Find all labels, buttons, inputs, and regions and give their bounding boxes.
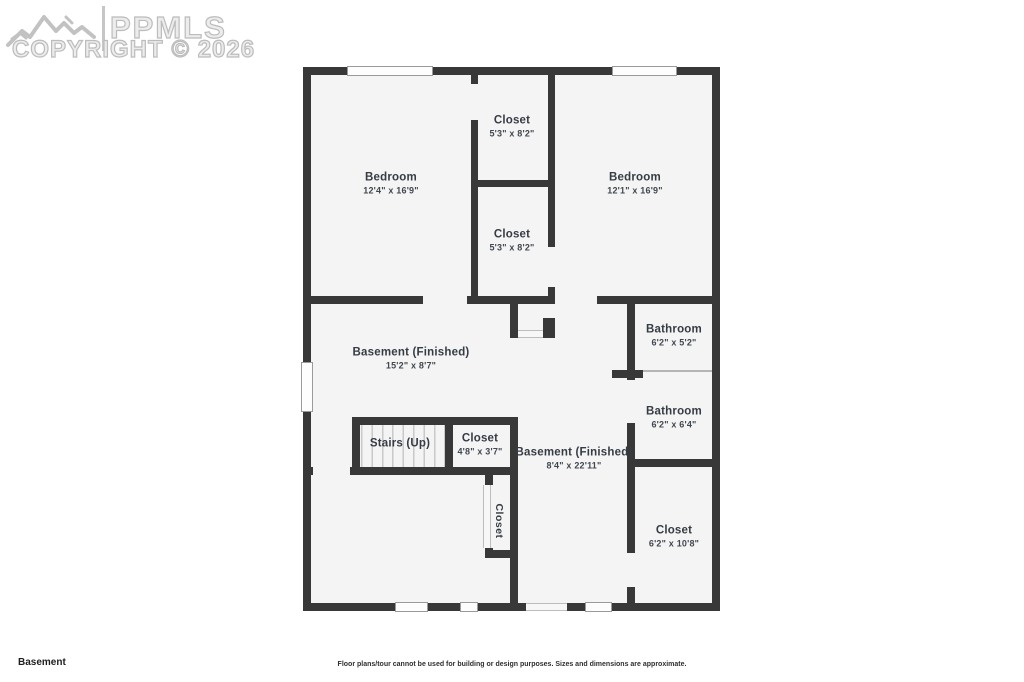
wall: [303, 296, 423, 304]
door-opening: [643, 370, 712, 372]
room-label-closet-top: Closet 5'3" x 8'2": [489, 115, 534, 140]
room-label-closet-small: Closet 4'8" x 3'7": [457, 433, 502, 458]
closet-door-opening: [483, 485, 491, 548]
room-label-closet-middle: Closet 5'3" x 8'2": [489, 229, 534, 254]
disclaimer-text: Floor plans/tour cannot be used for buil…: [338, 661, 687, 668]
wall: [567, 603, 586, 611]
room-dims: 6'2" x 10'8": [649, 539, 699, 549]
wall: [485, 550, 518, 558]
room-label-bedroom-upper-left: Bedroom 12'4" x 16'9": [363, 172, 418, 197]
door-opening: [518, 330, 543, 338]
wall: [548, 75, 555, 247]
wall: [627, 296, 635, 380]
window: [612, 66, 677, 76]
wall: [477, 603, 526, 611]
room-name: Stairs (Up): [370, 437, 430, 450]
room-name: Basement (Finished): [353, 347, 470, 360]
room-label-bathroom-upper: Bathroom 6'2" x 5'2": [646, 324, 702, 349]
room-name: Closet: [489, 115, 534, 128]
wall: [471, 180, 555, 187]
wall: [303, 67, 311, 611]
window: [460, 602, 478, 612]
room-label-closet-vertical: Closet: [493, 503, 505, 538]
wall: [303, 603, 397, 611]
window: [395, 602, 428, 612]
room-label-bedroom-upper-right: Bedroom 12'1" x 16'9": [607, 172, 662, 197]
room-dims: 12'4" x 16'9": [363, 186, 418, 196]
room-label-stairs: Stairs (Up): [370, 437, 430, 450]
wall: [612, 370, 643, 378]
wall: [485, 475, 493, 485]
wall: [712, 67, 720, 611]
door-opening: [526, 603, 567, 611]
window: [347, 66, 433, 76]
room-name: Bathroom: [646, 406, 702, 419]
wall: [471, 120, 478, 296]
room-label-bathroom-lower: Bathroom 6'2" x 6'4": [646, 406, 702, 431]
window: [585, 602, 612, 612]
wall: [627, 423, 635, 553]
wall: [303, 467, 313, 475]
room-dims: 8'4" x 22'11": [516, 461, 633, 471]
room-name: Basement (Finished): [516, 447, 633, 460]
room-name: Closet: [457, 433, 502, 446]
wall: [426, 603, 462, 611]
copyright-watermark: COPYRIGHT © 2026: [12, 36, 255, 64]
room-dims: 6'2" x 5'2": [646, 338, 702, 348]
room-name: Closet: [493, 503, 505, 538]
wall: [548, 287, 555, 296]
room-label-closet-bottom-right: Closet 6'2" x 10'8": [649, 525, 699, 550]
wall: [627, 459, 720, 467]
wall: [350, 467, 518, 475]
window: [301, 362, 313, 412]
room-dims: 5'3" x 8'2": [489, 129, 534, 139]
room-name: Bathroom: [646, 324, 702, 337]
wall: [352, 417, 518, 425]
floor-name-label: Basement: [18, 657, 66, 668]
room-dims: 15'2" x 8'7": [353, 361, 470, 371]
wall: [597, 296, 720, 304]
room-name: Closet: [649, 525, 699, 538]
room-name: Bedroom: [363, 172, 418, 185]
room-dims: 12'1" x 16'9": [607, 186, 662, 196]
room-dims: 5'3" x 8'2": [489, 243, 534, 253]
wall: [627, 587, 635, 611]
wall: [543, 318, 555, 338]
floorplan-page: PPMLS COPYRIGHT © 2026: [0, 0, 1024, 682]
room-dims: 4'8" x 3'7": [457, 447, 502, 457]
room-label-basement-left: Basement (Finished) 15'2" x 8'7": [353, 347, 470, 372]
room-label-basement-corridor: Basement (Finished) 8'4" x 22'11": [516, 447, 633, 472]
room-name: Bedroom: [607, 172, 662, 185]
room-name: Closet: [489, 229, 534, 242]
wall: [471, 75, 478, 84]
wall: [510, 296, 518, 338]
room-dims: 6'2" x 6'4": [646, 420, 702, 430]
